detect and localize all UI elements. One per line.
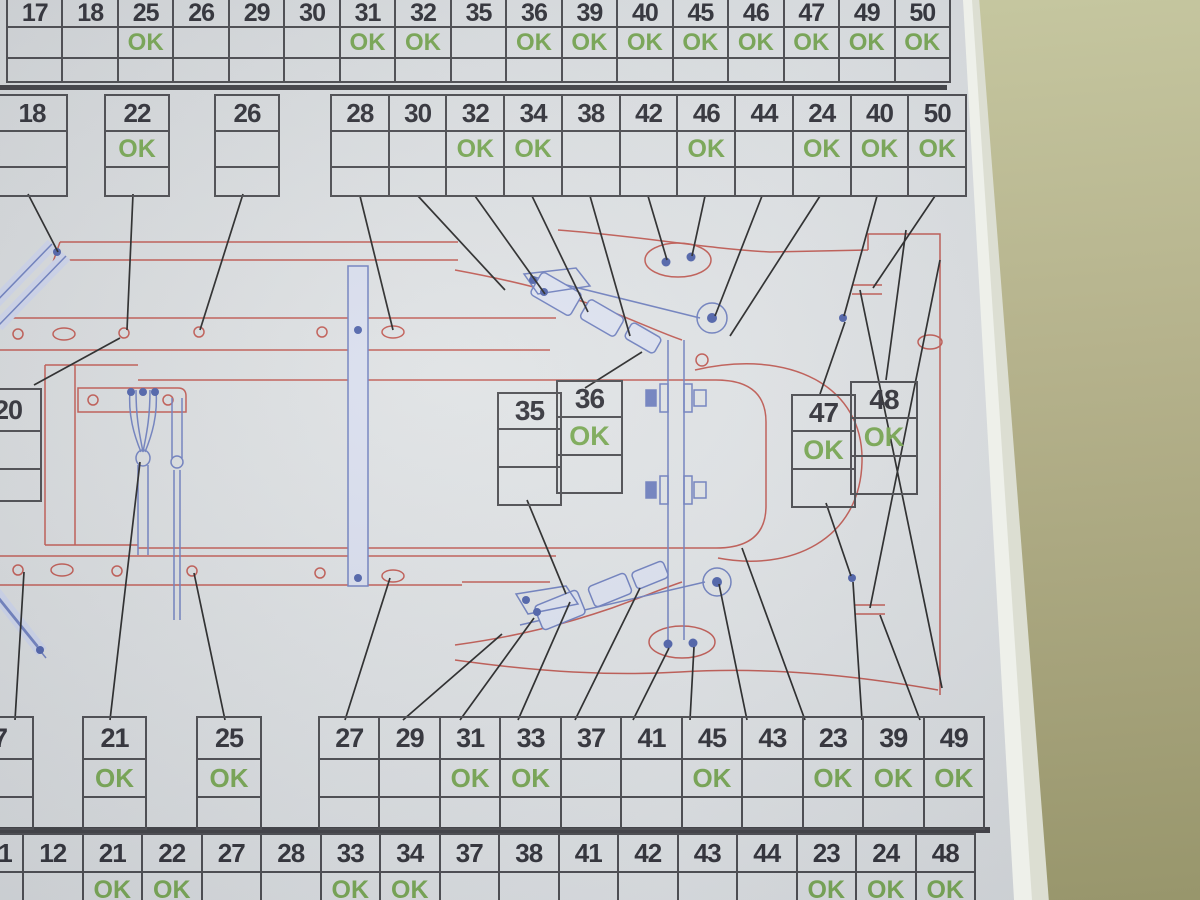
inspection-cell-33: 33OK <box>320 835 380 900</box>
inspection-cell-34: 34OK <box>503 96 561 195</box>
ok-mark: OK <box>857 871 915 900</box>
empty-status-cell <box>390 130 446 166</box>
point-number: 21 <box>84 835 142 871</box>
point-number: 35 <box>452 0 505 26</box>
inspection-cell-23: 23OK <box>796 835 856 900</box>
inspection-cell-18: 18 <box>61 0 116 81</box>
point-number: 33 <box>501 718 559 758</box>
point-number: 30 <box>285 0 338 26</box>
inspection-cell-49: 49OK <box>838 0 893 81</box>
point-number: 41 <box>622 718 680 758</box>
empty-cell <box>452 57 505 81</box>
point-number: 28 <box>262 835 320 871</box>
empty-status-cell <box>743 758 801 796</box>
point-number: 50 <box>896 0 949 26</box>
checkbox-point-47: 47OK <box>791 394 856 508</box>
point-number: 25 <box>119 0 172 26</box>
point-number: 45 <box>674 0 727 26</box>
ok-mark: OK <box>683 758 741 796</box>
empty-status-cell <box>562 758 620 796</box>
empty-cell <box>736 166 792 195</box>
inspection-cell-25: 25OK <box>117 0 172 81</box>
ok-mark: OK <box>852 130 908 166</box>
empty-status-cell <box>563 130 619 166</box>
empty-status-cell <box>0 758 32 796</box>
inspection-cell-36: 36OK <box>558 382 621 492</box>
inspection-cell-30: 30 <box>388 96 446 195</box>
empty-cell <box>864 796 922 828</box>
inspection-cell-32: 32OK <box>394 0 449 81</box>
inspection-cell-45: 45OK <box>681 718 741 828</box>
point-number: 43 <box>743 718 801 758</box>
empty-status-cell <box>320 758 378 796</box>
checkbox-point-35: 35 <box>497 392 562 506</box>
ok-mark: OK <box>381 871 439 900</box>
empty-status-cell <box>380 758 438 796</box>
inspection-cell-22: 22OK <box>106 96 168 195</box>
point-number: 44 <box>738 835 796 871</box>
inspection-cell-18: 18 <box>0 96 66 195</box>
fastener-dots <box>36 248 856 654</box>
empty-status-cell <box>332 130 388 166</box>
point-number: 27 <box>320 718 378 758</box>
point-number: 47 <box>785 0 838 26</box>
empty-cell <box>794 166 850 195</box>
point-number: 29 <box>230 0 283 26</box>
ok-mark: OK <box>322 871 380 900</box>
point-number: 18 <box>0 96 66 130</box>
empty-status-cell <box>500 871 558 900</box>
inspection-cell-31: 31OK <box>439 718 499 828</box>
ok-mark: OK <box>804 758 862 796</box>
empty-cell <box>563 166 619 195</box>
point-number: 26 <box>174 0 227 26</box>
inspection-cell-38: 38 <box>498 835 558 900</box>
inspection-cell-21: 21OK <box>82 835 142 900</box>
inspection-cell-42: 42 <box>619 96 677 195</box>
empty-cell <box>562 796 620 828</box>
point-number: 31 <box>441 718 499 758</box>
empty-status-cell <box>452 26 505 57</box>
point-number: 39 <box>563 0 616 26</box>
inspection-cell-39: 39OK <box>862 718 922 828</box>
empty-cell <box>320 796 378 828</box>
point-number: 20 <box>0 390 40 430</box>
checkbox-point-36: 36OK <box>556 380 623 494</box>
inspection-cell-45: 45OK <box>672 0 727 81</box>
inspection-cell-27: 27 <box>201 835 261 900</box>
empty-cell <box>621 166 677 195</box>
checkbox-point-18: 18 <box>0 94 68 197</box>
inspection-cell-48: 48OK <box>915 835 975 900</box>
point-number: 44 <box>736 96 792 130</box>
point-number: 7 <box>0 718 32 758</box>
inspection-cell-37: 37 <box>560 718 620 828</box>
point-number: 30 <box>390 96 446 130</box>
empty-cell <box>119 57 172 81</box>
inspection-cell-46: 46OK <box>727 0 782 81</box>
ok-mark: OK <box>864 758 922 796</box>
point-number: 40 <box>852 96 908 130</box>
ok-mark: OK <box>896 26 949 57</box>
point-number: 25 <box>198 718 260 758</box>
inspection-cell-30: 30 <box>283 0 338 81</box>
point-number: 37 <box>562 718 620 758</box>
inspection-cell-31: 31OK <box>339 0 394 81</box>
inspection-cell-26: 26 <box>216 96 278 195</box>
inspection-cell-47: 47OK <box>783 0 838 81</box>
empty-cell <box>793 468 854 506</box>
ok-mark: OK <box>852 417 916 455</box>
inspection-cell-26: 26 <box>172 0 227 81</box>
empty-status-cell <box>8 26 61 57</box>
ok-mark: OK <box>909 130 965 166</box>
empty-status-cell <box>0 130 66 166</box>
ok-mark: OK <box>729 26 782 57</box>
ok-mark: OK <box>840 26 893 57</box>
empty-cell <box>558 454 621 492</box>
point-number: 1 <box>0 835 22 871</box>
inspection-cell-29: 29 <box>378 718 438 828</box>
empty-cell <box>683 796 741 828</box>
point-number: 47 <box>793 396 854 430</box>
inspection-cell-17: 17 <box>8 0 61 81</box>
inspection-cell-43: 43 <box>741 718 801 828</box>
point-number: 27 <box>203 835 261 871</box>
empty-cell <box>396 57 449 81</box>
inspection-cell-35: 35 <box>450 0 505 81</box>
point-number: 42 <box>619 835 677 871</box>
point-number: 24 <box>857 835 915 871</box>
inspection-cell-28: 28 <box>260 835 320 900</box>
empty-cell <box>285 57 338 81</box>
ok-mark: OK <box>558 416 621 454</box>
empty-cell <box>563 57 616 81</box>
empty-cell <box>106 166 168 195</box>
point-number: 29 <box>380 718 438 758</box>
ok-mark: OK <box>341 26 394 57</box>
inspection-cell-28: 28 <box>332 96 388 195</box>
empty-status-cell <box>285 26 338 57</box>
empty-cell <box>390 166 446 195</box>
inspection-cell-43: 43 <box>677 835 737 900</box>
empty-cell <box>441 796 499 828</box>
point-number: 48 <box>852 383 916 417</box>
ok-mark: OK <box>143 871 201 900</box>
ok-mark: OK <box>618 26 671 57</box>
empty-cell <box>499 466 560 504</box>
point-number: 28 <box>332 96 388 130</box>
point-number: 36 <box>558 382 621 416</box>
ok-mark: OK <box>396 26 449 57</box>
checkbox-point-20: 20 <box>0 388 42 502</box>
checklist-row-bottom: 11221OK22OK272833OK34OK37384142434423OK2… <box>0 833 976 900</box>
empty-cell <box>0 166 66 195</box>
empty-cell <box>174 57 227 81</box>
empty-cell <box>230 57 283 81</box>
empty-cell <box>896 57 949 81</box>
empty-status-cell <box>441 871 499 900</box>
empty-status-cell <box>738 871 796 900</box>
ok-mark: OK <box>501 758 559 796</box>
point-number: 40 <box>618 0 671 26</box>
ok-mark: OK <box>794 130 850 166</box>
empty-status-cell <box>621 130 677 166</box>
point-number: 48 <box>917 835 975 871</box>
point-number: 42 <box>621 96 677 130</box>
empty-cell <box>729 57 782 81</box>
inspection-cell-7: 7 <box>0 718 32 828</box>
band-divider-top <box>0 85 947 90</box>
point-number: 34 <box>381 835 439 871</box>
ok-mark: OK <box>106 130 168 166</box>
empty-cell <box>804 796 862 828</box>
empty-status-cell <box>560 871 618 900</box>
inspection-cell-27: 27 <box>320 718 378 828</box>
empty-cell <box>63 57 116 81</box>
empty-status-cell <box>0 430 40 468</box>
point-number: 22 <box>106 96 168 130</box>
point-number: 23 <box>804 718 862 758</box>
empty-cell <box>925 796 983 828</box>
inspection-cell-34: 34OK <box>379 835 439 900</box>
ok-mark: OK <box>84 871 142 900</box>
point-number: 24 <box>794 96 850 130</box>
inspection-cell-44: 44 <box>736 835 796 900</box>
ok-mark: OK <box>505 130 561 166</box>
point-number: 33 <box>322 835 380 871</box>
checkbox-point-7: 7 <box>0 716 34 830</box>
point-number: 50 <box>909 96 965 130</box>
inspection-cell-36: 36OK <box>505 0 560 81</box>
point-number: 18 <box>63 0 116 26</box>
inspection-cell-44: 44 <box>734 96 792 195</box>
ok-mark: OK <box>447 130 503 166</box>
empty-cell <box>0 468 40 500</box>
empty-status-cell <box>679 871 737 900</box>
checkbox-point-48: 48OK <box>850 381 918 495</box>
empty-cell <box>743 796 801 828</box>
point-number: 22 <box>143 835 201 871</box>
empty-cell <box>380 796 438 828</box>
inspection-cell-35: 35 <box>499 394 560 504</box>
checkbox-point-21: 21OK <box>82 716 147 830</box>
point-number: 39 <box>864 718 922 758</box>
empty-status-cell <box>216 130 278 166</box>
ok-mark: OK <box>198 758 260 796</box>
point-number: 31 <box>341 0 394 26</box>
point-number: 35 <box>499 394 560 428</box>
inspection-cell-32: 32OK <box>445 96 503 195</box>
photo-of-inspection-sheet: 171825OK26293031OK32OK3536OK39OK40OK45OK… <box>0 0 1200 900</box>
empty-cell <box>216 166 278 195</box>
point-number: 21 <box>84 718 145 758</box>
empty-status-cell <box>262 871 320 900</box>
empty-cell <box>84 796 145 828</box>
ok-mark: OK <box>925 758 983 796</box>
checkbox-point-26: 26 <box>214 94 280 197</box>
ok-mark: OK <box>507 26 560 57</box>
point-number: 46 <box>729 0 782 26</box>
inspection-cell-39: 39OK <box>561 0 616 81</box>
inspection-cell-1: 1 <box>0 835 22 900</box>
ok-mark: OK <box>563 26 616 57</box>
checkbox-point-25: 25OK <box>196 716 262 830</box>
ok-mark: OK <box>678 130 734 166</box>
empty-cell <box>341 57 394 81</box>
empty-cell <box>505 166 561 195</box>
point-number: 26 <box>216 96 278 130</box>
inspection-cell-20: 20 <box>0 390 40 500</box>
empty-cell <box>507 57 560 81</box>
empty-cell <box>332 166 388 195</box>
inspection-cell-38: 38 <box>561 96 619 195</box>
empty-status-cell <box>63 26 116 57</box>
empty-cell <box>618 57 671 81</box>
inspection-cell-46: 46OK <box>676 96 734 195</box>
empty-status-cell <box>0 871 22 900</box>
empty-cell <box>0 796 32 828</box>
point-number: 23 <box>798 835 856 871</box>
empty-cell <box>674 57 727 81</box>
point-number: 38 <box>500 835 558 871</box>
point-number: 36 <box>507 0 560 26</box>
inspection-cell-22: 22OK <box>141 835 201 900</box>
inspection-cell-49: 49OK <box>923 718 983 828</box>
empty-cell <box>852 455 916 493</box>
empty-status-cell <box>203 871 261 900</box>
inspection-cell-29: 29 <box>228 0 283 81</box>
point-number: 49 <box>925 718 983 758</box>
ok-mark: OK <box>119 26 172 57</box>
empty-status-cell <box>230 26 283 57</box>
empty-cell <box>840 57 893 81</box>
point-number: 37 <box>441 835 499 871</box>
inspection-cell-25: 25OK <box>198 718 260 828</box>
point-number: 41 <box>560 835 618 871</box>
point-number: 12 <box>24 835 82 871</box>
inspection-cell-33: 33OK <box>499 718 559 828</box>
point-number: 38 <box>563 96 619 130</box>
inspection-cell-24: 24OK <box>792 96 850 195</box>
checklist-group-upper: 283032OK34OK384246OK4424OK40OK50OK <box>330 94 967 197</box>
empty-cell <box>501 796 559 828</box>
ok-mark: OK <box>441 758 499 796</box>
empty-status-cell <box>499 428 560 466</box>
empty-status-cell <box>622 758 680 796</box>
inspection-cell-12: 12 <box>22 835 82 900</box>
empty-status-cell <box>24 871 82 900</box>
empty-cell <box>198 796 260 828</box>
point-number: 32 <box>447 96 503 130</box>
checkbox-point-22: 22OK <box>104 94 170 197</box>
point-number: 49 <box>840 0 893 26</box>
empty-status-cell <box>174 26 227 57</box>
point-number: 46 <box>678 96 734 130</box>
point-number: 34 <box>505 96 561 130</box>
inspection-cell-24: 24OK <box>855 835 915 900</box>
ok-mark: OK <box>917 871 975 900</box>
inspection-cell-48: 48OK <box>852 383 916 493</box>
inspection-cell-23: 23OK <box>802 718 862 828</box>
point-number: 17 <box>8 0 61 26</box>
inspection-cell-41: 41 <box>620 718 680 828</box>
ok-mark: OK <box>798 871 856 900</box>
ok-mark: OK <box>674 26 727 57</box>
empty-status-cell <box>619 871 677 900</box>
inspection-cell-41: 41 <box>558 835 618 900</box>
point-number: 43 <box>679 835 737 871</box>
checklist-row-top: 171825OK26293031OK32OK3536OK39OK40OK45OK… <box>6 0 951 83</box>
empty-cell <box>678 166 734 195</box>
point-number: 45 <box>683 718 741 758</box>
inspection-cell-21: 21OK <box>84 718 145 828</box>
ok-mark: OK <box>84 758 145 796</box>
inspection-cell-40: 40OK <box>616 0 671 81</box>
empty-status-cell <box>736 130 792 166</box>
inspection-cell-42: 42 <box>617 835 677 900</box>
point-number: 32 <box>396 0 449 26</box>
inspection-cell-50: 50OK <box>907 96 965 195</box>
ok-mark: OK <box>793 430 854 468</box>
inspection-cell-50: 50OK <box>894 0 949 81</box>
empty-cell <box>8 57 61 81</box>
empty-cell <box>785 57 838 81</box>
checklist-group-lower: 272931OK33OK374145OK4323OK39OK49OK <box>318 716 985 830</box>
inspection-cell-47: 47OK <box>793 396 854 506</box>
empty-cell <box>447 166 503 195</box>
empty-cell <box>622 796 680 828</box>
empty-cell <box>852 166 908 195</box>
empty-cell <box>909 166 965 195</box>
inspection-cell-37: 37 <box>439 835 499 900</box>
ok-mark: OK <box>785 26 838 57</box>
inspection-cell-40: 40OK <box>850 96 908 195</box>
